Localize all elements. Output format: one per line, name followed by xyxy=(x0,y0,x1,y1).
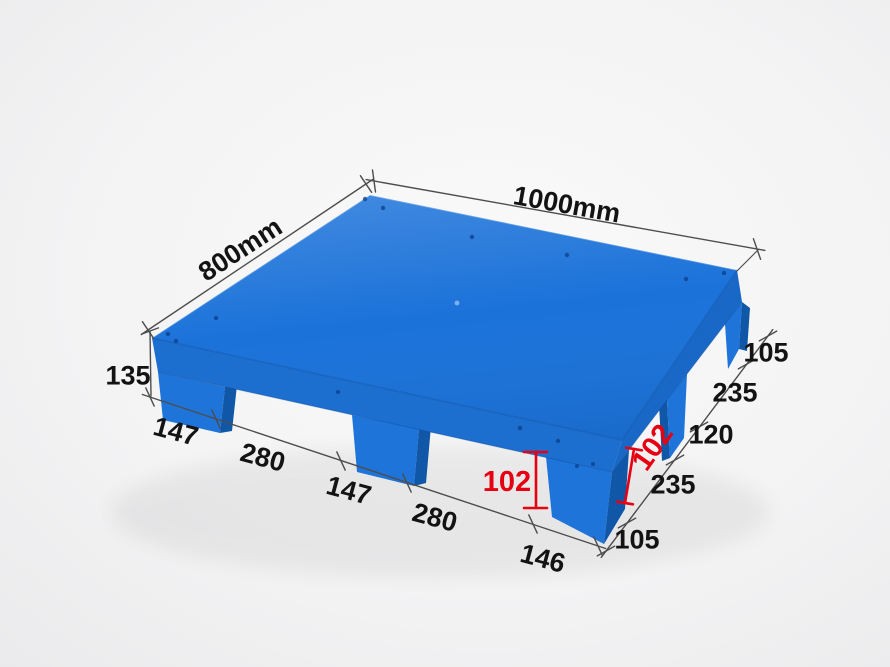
vent-hole xyxy=(470,235,474,239)
dim-label-right-235a: 235 xyxy=(650,469,695,499)
vent-hole xyxy=(363,197,367,201)
vent-hole xyxy=(518,426,522,430)
vent-hole xyxy=(565,253,569,257)
dim-label-right-105b: 105 xyxy=(743,337,788,367)
pallet-diagram-canvas: 800mm 1000mm 135 147 280 147 280 146 105… xyxy=(0,0,890,667)
vent-hole xyxy=(381,206,385,210)
dim-label-right-235b: 235 xyxy=(712,377,757,407)
vent-hole xyxy=(575,464,579,468)
vent-hole xyxy=(556,439,560,443)
product-dimension-diagram: 800mm 1000mm 135 147 280 147 280 146 105… xyxy=(0,0,890,667)
dim-label-right-105a: 105 xyxy=(614,524,659,554)
dim-label-foot-102-front: 102 xyxy=(483,466,531,498)
vent-hole xyxy=(166,332,170,336)
vent-hole xyxy=(591,462,595,466)
vent-hole xyxy=(684,277,688,281)
vent-hole xyxy=(336,390,340,394)
dim-label-right-120: 120 xyxy=(688,419,733,449)
vent-hole xyxy=(214,316,218,320)
vent-hole xyxy=(722,271,726,275)
vent-hole-light xyxy=(455,301,460,306)
dim-label-height-135: 135 xyxy=(105,360,150,390)
vent-hole xyxy=(174,339,178,343)
